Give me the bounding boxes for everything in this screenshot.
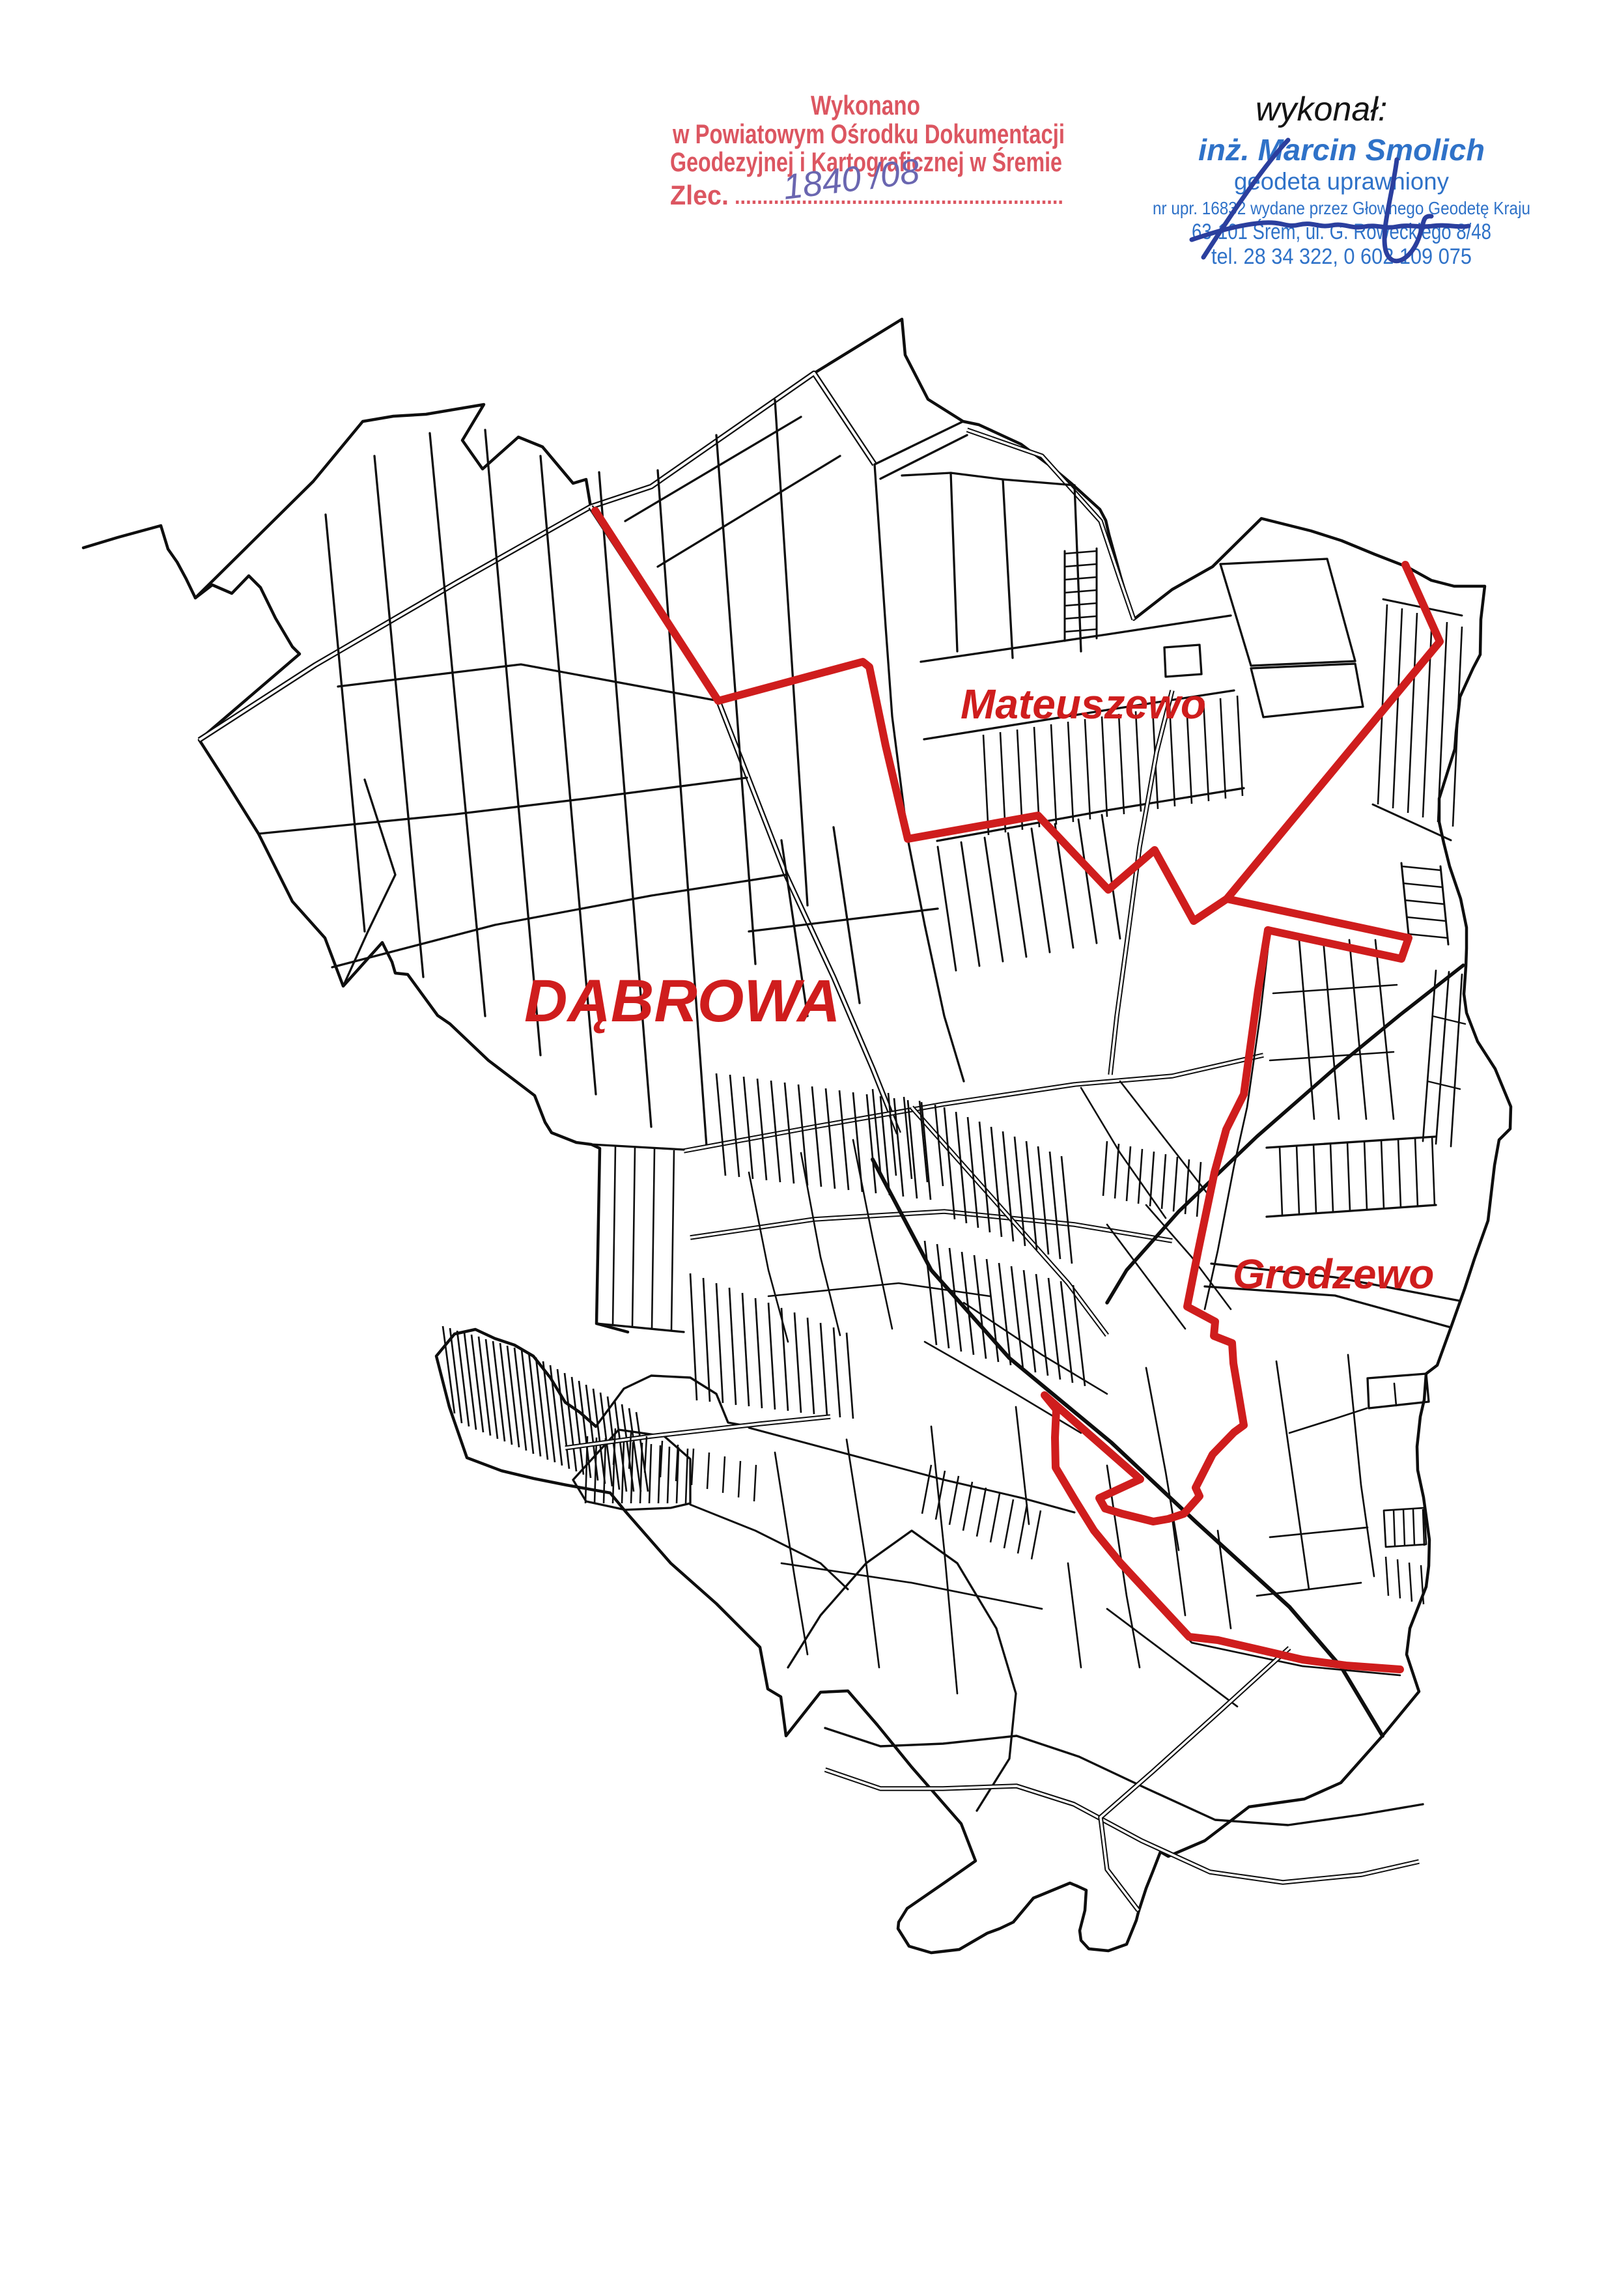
svg-text:inż. Marcin Smolich: inż. Marcin Smolich [1198, 133, 1485, 167]
svg-text:wykonał:: wykonał: [1256, 91, 1387, 128]
svg-text:Wykonano: Wykonano [811, 90, 920, 120]
svg-text:63-101 Śrem, ul. G. Roweckiego: 63-101 Śrem, ul. G. Roweckiego 8/48 [1192, 219, 1491, 244]
svg-text:w Powiatowym Ośrodku Dokumenta: w Powiatowym Ośrodku Dokumentacji [672, 119, 1065, 149]
svg-text:geodeta uprawniony: geodeta uprawniony [1234, 168, 1449, 195]
svg-text:DĄBROWA: DĄBROWA [524, 968, 841, 1034]
svg-text:Mateuszewo: Mateuszewo [961, 681, 1206, 728]
svg-text:tel. 28 34 322, 0 602 109 075: tel. 28 34 322, 0 602 109 075 [1211, 244, 1472, 269]
svg-text:Grodzewo: Grodzewo [1233, 1251, 1434, 1297]
svg-text:nr upr. 16832 wydane przez Gło: nr upr. 16832 wydane przez Głownego Geod… [1153, 198, 1530, 218]
svg-text:Zlec.: Zlec. [670, 180, 729, 210]
